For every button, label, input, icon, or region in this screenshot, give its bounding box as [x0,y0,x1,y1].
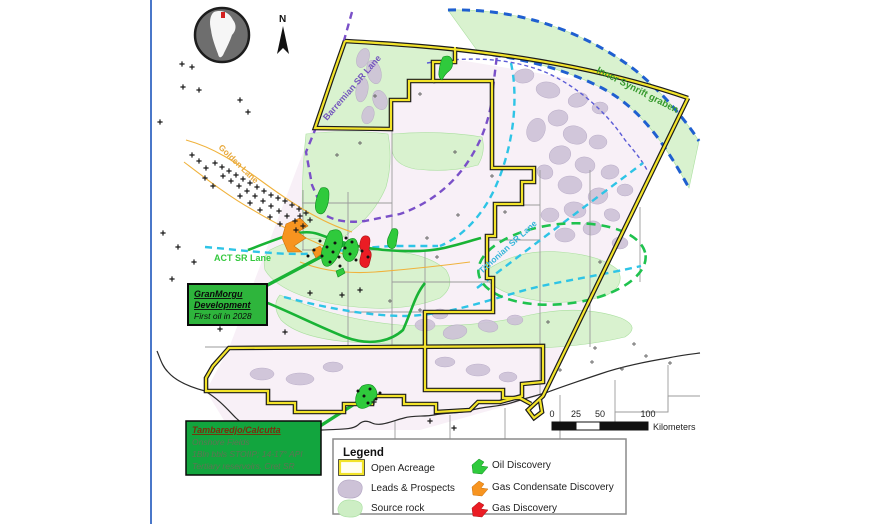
legend-open-acreage: Open Acreage [371,463,435,474]
legend-leads: Leads & Prospects [371,483,455,494]
well-dot [332,251,335,254]
well-dot [307,255,310,258]
tambaredjo-line2: 1Bln bbls STOIIP; 14-17° API [192,449,303,459]
granmorgu-line1: GranMorgu [194,289,243,299]
legend-gas-condensate: Gas Condensate Discovery [492,482,614,493]
well-dot [355,259,358,262]
tambaredjo-line1: Onshore Fields [192,437,250,447]
well-dot [367,402,370,405]
legend-gas: Gas Discovery [492,503,557,514]
granmorgu-line3: First oil in 2028 [194,311,252,321]
well-dot [313,249,316,252]
source-rock-mid [392,133,483,171]
well-dot [367,256,370,259]
tambaredjo-title: Tambaredjo/Calcutta [192,425,281,435]
open-acreage-swatch [340,461,363,474]
legend-title: Legend [343,447,384,459]
legend: Legend Open Acreage Leads & Prospects So… [333,439,626,517]
legend-oil: Oil Discovery [492,460,551,471]
well-dot [375,398,378,401]
scale-unit: Kilometers [653,422,696,432]
scale-50: 50 [595,409,605,419]
act-sr-lane-label: ACT SR Lane [214,253,271,263]
legend-source-rock: Source rock [371,503,425,514]
tambaredjo-line3: Tertiary reservoirs. Cret SR [192,461,295,471]
source-rock-swatch [338,500,362,517]
leads-swatch [338,480,362,498]
scale-0: 0 [549,409,554,419]
well-dot [349,253,352,256]
well-dot [319,240,322,243]
suriname-marker [221,12,225,18]
tambaredjo-callout: Tambaredjo/Calcutta Onshore Fields 1Bln … [186,421,321,475]
scale-100: 100 [640,409,655,419]
well-dot [329,261,332,264]
well-dot [351,241,354,244]
globe-inset [195,8,249,62]
well-dot [326,246,329,249]
well-dot [344,247,347,250]
granmorgu-callout: GranMorgu Development First oil in 2028 [188,284,267,325]
well-dot [339,265,342,268]
well-dot [369,388,372,391]
well-dot [363,395,366,398]
north-label: N [279,14,286,25]
well-dot [357,390,360,393]
well-dot [361,250,364,253]
well-dot [334,242,337,245]
well-dot [379,392,382,395]
scale-25: 25 [571,409,581,419]
well-dot [345,237,348,240]
map-figure: Golden Lane Barremian SR Lane Inner Synr… [0,0,870,524]
well-dot [338,256,341,259]
exploration-map: Golden Lane Barremian SR Lane Inner Synr… [0,0,870,524]
well-dot [321,255,324,258]
granmorgu-line2: Development [194,300,252,310]
